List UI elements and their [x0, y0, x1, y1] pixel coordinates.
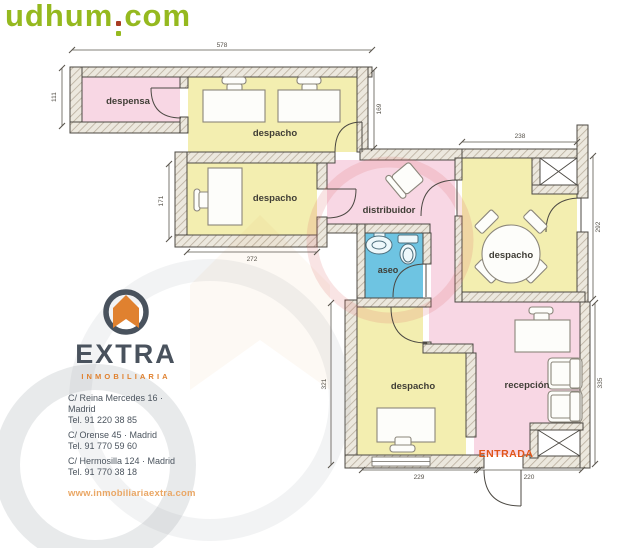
desk: [278, 90, 340, 122]
dim-despacho-top-height: 169: [371, 67, 383, 151]
desk: [203, 90, 265, 122]
label-despacho-right: despacho: [489, 250, 534, 261]
agency-website: www.inmobiliariaextra.com: [60, 488, 192, 499]
svg-text:292: 292: [595, 221, 602, 232]
shaft-symbol-top: [540, 158, 577, 185]
label-despacho-top: despacho: [253, 128, 298, 139]
label-despensa: despensa: [106, 96, 151, 107]
office-address: C/ Hermosilla 124 · Madrid: [68, 456, 192, 467]
agency-card: EXTRA INMOBILIARIA C/ Reina Mercedes 16 …: [60, 286, 192, 499]
dim-despacho-right-height: 292: [590, 153, 602, 302]
label-recepcion: recepción: [505, 380, 550, 391]
office-phone: Tel. 91 770 59 60: [68, 441, 192, 452]
dim-top-width: 578: [69, 42, 375, 53]
chair: [222, 77, 246, 84]
office-item: C/ Orense 45 · Madrid Tel. 91 770 59 60: [68, 430, 192, 452]
office-address: C/ Orense 45 · Madrid: [68, 430, 192, 441]
svg-text:335: 335: [597, 377, 604, 388]
chair: [297, 77, 321, 84]
label-distribuidor: distribuidor: [363, 205, 416, 216]
office-item: C/ Hermosilla 124 · Madrid Tel. 91 770 3…: [68, 456, 192, 478]
svg-text:578: 578: [217, 42, 228, 49]
chair: [390, 445, 415, 452]
dim-bottom-right-width: 220: [476, 467, 585, 481]
shaft-symbol-bottom: [538, 430, 580, 456]
dim-despensa-height: 111: [51, 65, 65, 129]
label-despacho-mid: despacho: [253, 193, 298, 204]
office-phone: Tel. 91 220 38 85: [68, 415, 192, 426]
logo-house-icon: [113, 295, 139, 328]
svg-text:111: 111: [51, 92, 58, 102]
svg-text:229: 229: [414, 474, 425, 481]
dim-despacho-right-width: 238: [459, 133, 580, 145]
agency-name: EXTRA: [60, 339, 192, 370]
svg-text:220: 220: [524, 474, 535, 481]
svg-text:321: 321: [321, 378, 328, 389]
office-phone: Tel. 91 770 38 18: [68, 467, 192, 478]
extra-logo-icon: [100, 286, 152, 338]
label-aseo: aseo: [378, 265, 399, 275]
sink-basin: [372, 241, 386, 249]
office-item: C/ Reina Mercedes 16 · Madrid Tel. 91 22…: [68, 393, 192, 426]
armchair-seat: [551, 362, 571, 385]
toilet-tank: [398, 235, 418, 243]
flyer-page: udhum com: [0, 0, 640, 548]
svg-text:169: 169: [376, 103, 383, 114]
desk: [515, 320, 570, 352]
desk: [208, 168, 242, 225]
window-symbol: [372, 457, 430, 466]
door-entrada: [484, 470, 521, 506]
armchair-seat: [551, 395, 571, 418]
office-address: C/ Reina Mercedes 16 · Madrid: [68, 393, 192, 415]
svg-text:272: 272: [247, 256, 258, 263]
toilet-bowl: [403, 248, 413, 262]
armchair-back: [570, 392, 580, 421]
label-entrada: ENTRADA: [479, 448, 534, 460]
svg-text:171: 171: [158, 195, 165, 206]
label-despacho-bottom: despacho: [391, 381, 436, 392]
agency-offices: C/ Reina Mercedes 16 · Madrid Tel. 91 22…: [60, 393, 192, 478]
agency-tagline: INMOBILIARIA: [60, 372, 192, 381]
dim-bottom-left-width: 229: [359, 467, 480, 481]
svg-text:238: 238: [515, 133, 526, 140]
dim-despacho-mid-height: 171: [158, 161, 172, 242]
dim-recepcion-height: 335: [592, 300, 604, 467]
armchair-back: [570, 359, 580, 388]
